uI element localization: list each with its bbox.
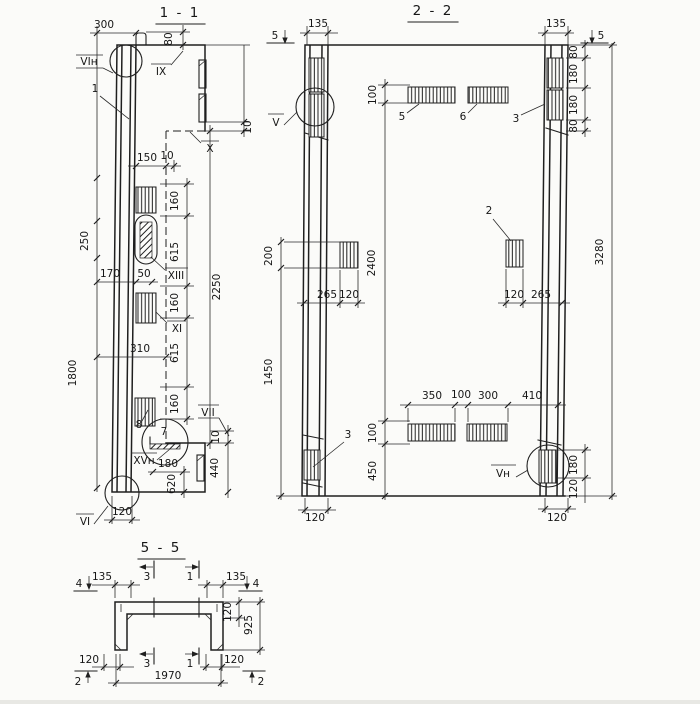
item-3-bottom: 3 xyxy=(345,429,352,441)
cut-1-top-arrow xyxy=(192,564,199,569)
dim-120-right: 120 xyxy=(504,289,524,301)
ref-vn: Vн xyxy=(496,468,510,480)
cut-4-right-arrow xyxy=(244,584,249,591)
dim-80-b: 80 xyxy=(568,119,580,132)
dim-1970: 1970 xyxy=(155,670,182,682)
rib-embed-bar xyxy=(547,90,563,120)
dim-2400: 2400 xyxy=(366,250,378,277)
dim-180-b: 180 xyxy=(568,95,580,115)
dim-120-bottom-left: 120 xyxy=(305,512,325,524)
dim-350: 350 xyxy=(422,390,442,402)
structural-drawing: 1 - 1 300 80 150 10 10 xyxy=(0,0,700,700)
rib-embed-bar xyxy=(309,58,324,92)
dim-120-right: 120 xyxy=(224,654,244,666)
section-1-1-title: 1 - 1 xyxy=(160,5,201,21)
face-embed-bar xyxy=(467,424,507,441)
embed-plate xyxy=(136,187,156,213)
dim-120-bottom-right: 120 xyxy=(547,512,567,524)
corner-marks xyxy=(115,604,223,650)
dim-180-a: 180 xyxy=(568,64,580,84)
item-6: 6 xyxy=(460,111,467,123)
dim-925: 925 xyxy=(243,615,255,635)
drawing-sheet: 1 - 1 300 80 150 10 10 xyxy=(0,0,700,700)
dim-170: 170 xyxy=(100,268,120,280)
section-5-5-title: 5 - 5 xyxy=(141,540,182,556)
cut-5-right: 5 xyxy=(598,30,605,42)
dim-265-left: 265 xyxy=(317,289,337,301)
item-2: 2 xyxy=(486,205,493,217)
cut-2-right: 2 xyxy=(258,676,265,688)
dim-135-right: 135 xyxy=(226,571,246,583)
item-7: 7 xyxy=(161,426,168,438)
dim-135-right: 135 xyxy=(546,18,566,30)
ref-vii: VII xyxy=(201,407,214,419)
dim-615-b: 615 xyxy=(169,343,181,363)
face-embed-bar-5 xyxy=(408,87,455,103)
cut-3-bottom: 3 xyxy=(144,658,151,670)
dim-120-br: 120 xyxy=(568,479,580,499)
channel-outline xyxy=(115,602,223,650)
cut-1-top: 1 xyxy=(187,571,194,583)
ref-x: X xyxy=(206,143,213,155)
dim-120-left: 120 xyxy=(339,289,359,301)
rib-embed-bar xyxy=(304,450,320,480)
embed-plate xyxy=(136,293,156,323)
dim-1800: 1800 xyxy=(67,360,79,387)
ref-xvn: XVн xyxy=(133,455,154,467)
cut-4-left: 4 xyxy=(76,578,83,590)
dim-10-step: 10 xyxy=(242,120,254,133)
cut-1-bottom-arrow xyxy=(192,651,199,656)
detail-circle-vi xyxy=(105,476,139,510)
dim-615-a: 615 xyxy=(169,242,181,262)
section-2-2-title: 2 - 2 xyxy=(413,3,454,19)
dim-2250: 2250 xyxy=(211,274,223,301)
item-3-top: 3 xyxy=(513,113,520,125)
cut-2-right-arrow xyxy=(249,671,254,678)
cut-5-left: 5 xyxy=(272,30,279,42)
section-2-2: 2 - 2 5 5 135 135 80 xyxy=(263,3,617,524)
dim-300: 300 xyxy=(478,390,498,402)
rib-embed-bar xyxy=(547,58,563,88)
dim-1450: 1450 xyxy=(263,359,275,386)
dim-10: 10 xyxy=(160,150,173,162)
dim-120-left: 120 xyxy=(79,654,99,666)
dim-80: 80 xyxy=(163,32,175,45)
dim-160-c: 160 xyxy=(169,394,181,414)
dim-440: 440 xyxy=(209,458,221,478)
dim-80-a: 80 xyxy=(568,45,580,58)
ref-vin: VIн xyxy=(80,56,97,68)
ref-overlines xyxy=(268,114,516,465)
ref-xiii: XIII xyxy=(168,270,184,282)
cut-3-top-arrow xyxy=(139,564,146,569)
dim-50: 50 xyxy=(137,268,150,280)
ref-vi: VI xyxy=(80,516,90,528)
dim-135-left: 135 xyxy=(92,571,112,583)
ref-xi: XI xyxy=(172,323,182,335)
cut-4-right: 4 xyxy=(253,578,260,590)
ref-v: V xyxy=(272,117,280,129)
dim-150: 150 xyxy=(137,152,157,164)
cut-3-bottom-arrow xyxy=(139,651,146,656)
dim-3280: 3280 xyxy=(594,239,606,266)
dim-250: 250 xyxy=(79,231,91,251)
face-embed-plate xyxy=(340,242,358,268)
cut-4-left-arrow xyxy=(86,584,91,591)
dim-100-top: 100 xyxy=(367,85,379,105)
angle-item-7-hatch xyxy=(150,444,180,449)
dim-200: 200 xyxy=(263,246,275,266)
face-embed-plate-2 xyxy=(506,240,523,267)
rib-embed-bar xyxy=(309,94,324,137)
dim-100: 100 xyxy=(451,389,471,401)
dim-180-br: 180 xyxy=(568,455,580,475)
top-key-tenon xyxy=(136,33,146,45)
dim-10-bottom: 10 xyxy=(210,430,222,443)
cut-1-bottom: 1 xyxy=(187,658,194,670)
dim-410: 410 xyxy=(522,390,542,402)
dim-135-left: 135 xyxy=(308,18,328,30)
cut-2-left: 2 xyxy=(75,676,82,688)
ref-ix: IX xyxy=(156,66,166,78)
detail-circle-vin xyxy=(110,45,142,77)
section-1-1: 1 - 1 300 80 150 10 10 xyxy=(67,5,254,528)
dim-180: 180 xyxy=(158,458,178,470)
face-embed-bar-6 xyxy=(468,87,508,103)
face-embed-bar xyxy=(408,424,455,441)
dim-310: 310 xyxy=(130,343,150,355)
lifting-loop-bar xyxy=(140,222,152,258)
dim-265-right: 265 xyxy=(531,289,551,301)
item-5: 5 xyxy=(399,111,406,123)
dim-160-a: 160 xyxy=(169,191,181,211)
dim-100-bottom: 100 xyxy=(367,423,379,443)
item-8: 8 xyxy=(136,419,143,431)
ref-overlines xyxy=(76,55,219,514)
dim-620: 620 xyxy=(166,474,178,494)
section-5-5: 5 - 5 3 1 3 1 4 4 2 2 135 xyxy=(74,540,265,688)
item-1: 1 xyxy=(92,83,99,95)
cut-3-top: 3 xyxy=(144,571,151,583)
dim-120: 120 xyxy=(112,506,132,518)
dim-450: 450 xyxy=(367,461,379,481)
dim-120-thickness: 120 xyxy=(222,602,234,622)
dim-160-b: 160 xyxy=(169,293,181,313)
rib-embed-bar xyxy=(539,450,556,483)
cut-2-left-arrow xyxy=(85,671,90,678)
dim-300: 300 xyxy=(94,19,114,31)
panel-rib-outline xyxy=(112,45,205,492)
edge-embed-bottom xyxy=(197,455,204,481)
